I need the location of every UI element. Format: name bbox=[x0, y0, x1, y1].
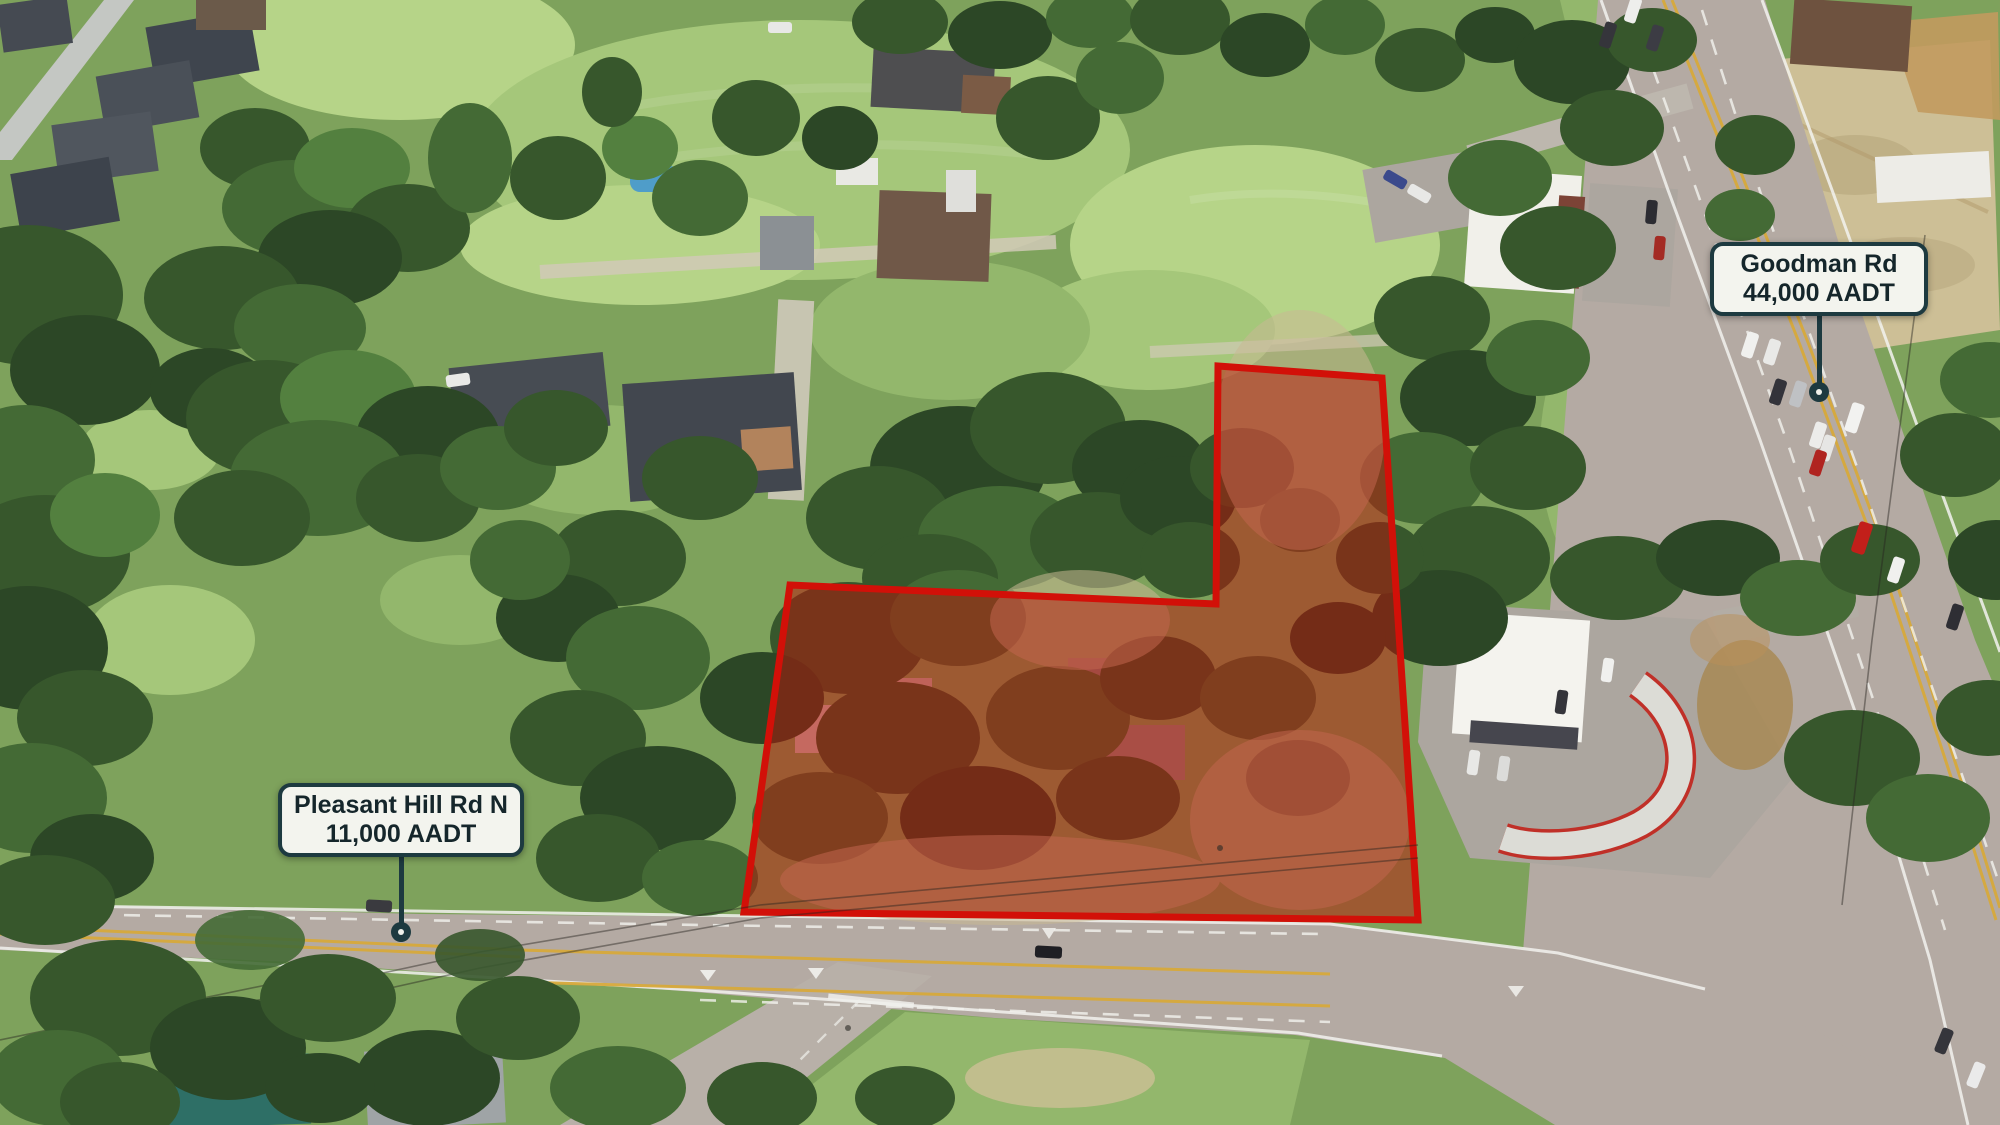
pleasant-hill-rd-label: Pleasant Hill Rd N 11,000 AADT bbox=[278, 783, 524, 857]
goodman-rd-label-name: Goodman Rd bbox=[1726, 250, 1912, 279]
goodman-rd-anchor-dot bbox=[1809, 382, 1829, 402]
goodman-rd-leader-line bbox=[1817, 308, 1822, 392]
goodman-rd-label-aadt: 44,000 AADT bbox=[1726, 279, 1912, 308]
aerial-site-map: Goodman Rd 44,000 AADT Pleasant Hill Rd … bbox=[0, 0, 2000, 1125]
pleasant-hill-rd-label-name: Pleasant Hill Rd N bbox=[294, 791, 508, 820]
aerial-photo bbox=[0, 0, 2000, 1125]
pleasant-hill-rd-anchor-dot bbox=[391, 922, 411, 942]
goodman-rd-label: Goodman Rd 44,000 AADT bbox=[1710, 242, 1928, 316]
pleasant-hill-rd-label-aadt: 11,000 AADT bbox=[294, 820, 508, 849]
pleasant-hill-rd-leader-line bbox=[399, 844, 404, 932]
